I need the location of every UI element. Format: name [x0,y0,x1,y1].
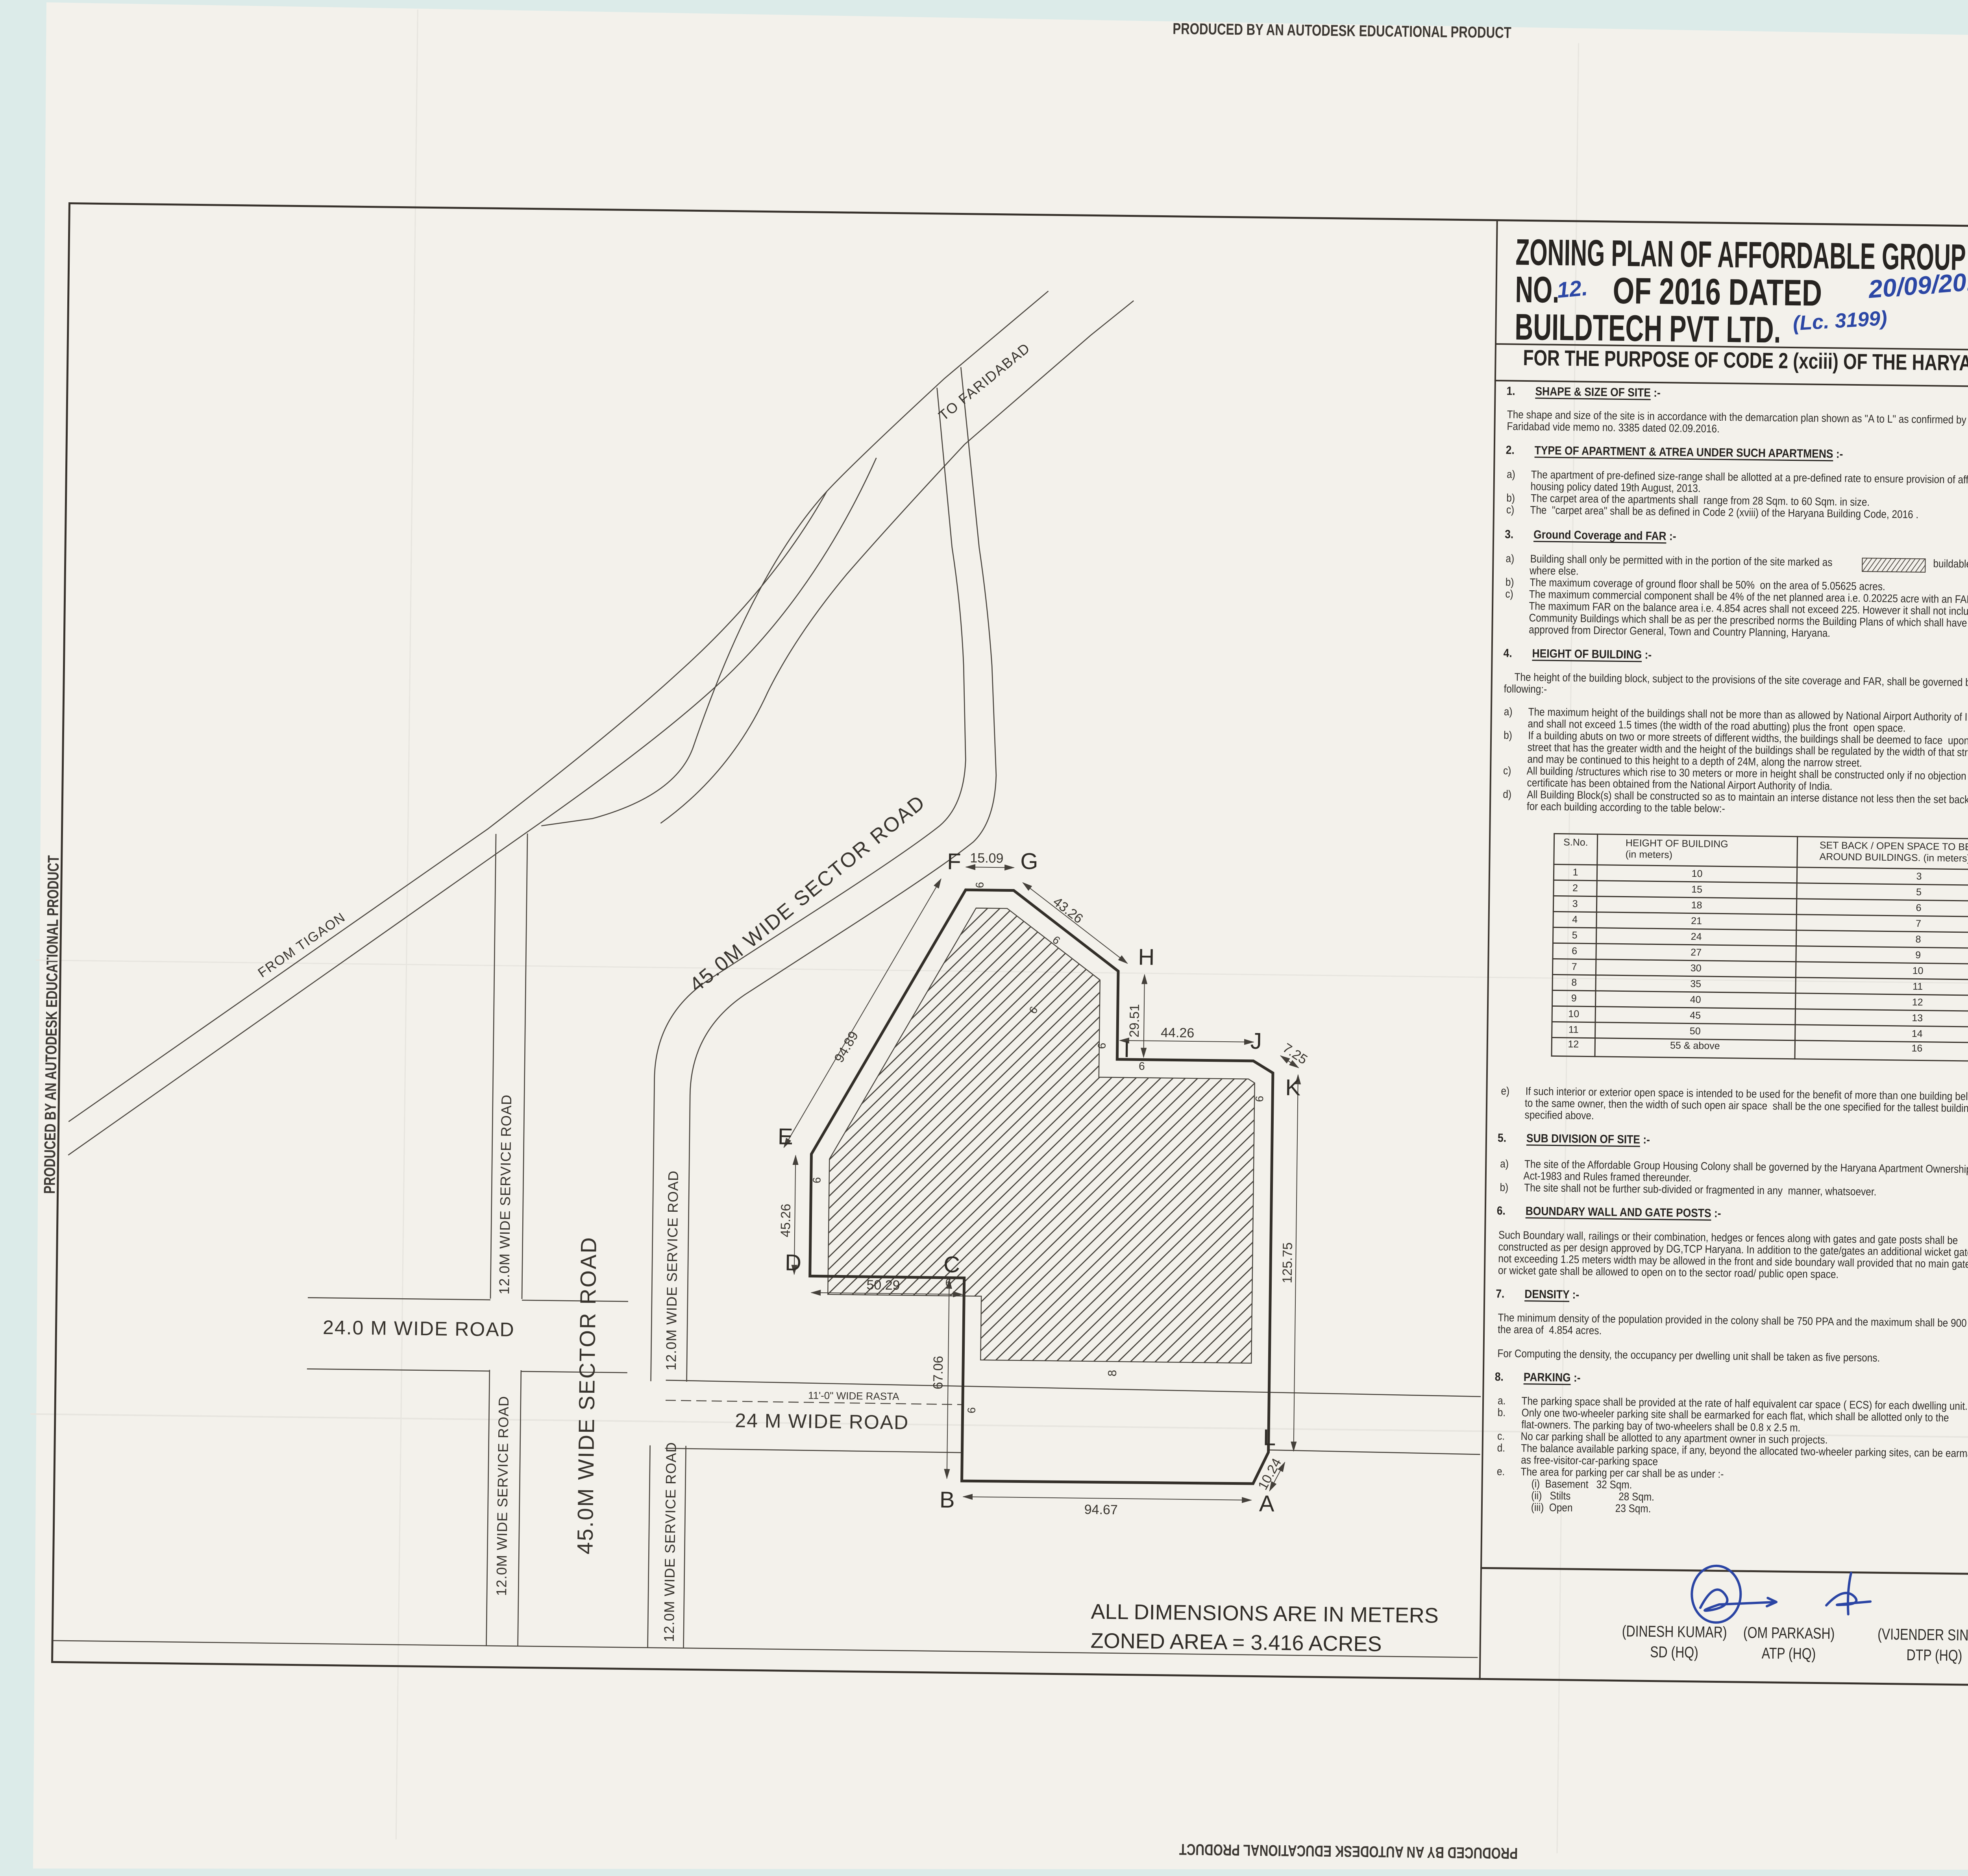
svg-text:45.0M WIDE SECTOR ROAD: 45.0M WIDE SECTOR ROAD [685,791,930,997]
svg-text:FROM TIGAON: FROM TIGAON [255,909,348,980]
svg-text:12.0M WIDE SERVICE ROAD: 12.0M WIDE SERVICE ROAD [663,1170,681,1371]
svg-text:45.26: 45.26 [778,1203,793,1237]
svg-text:24.0 M WIDE ROAD: 24.0 M WIDE ROAD [323,1316,515,1341]
svg-text:E: E [778,1124,793,1150]
svg-text:ALL DIMENSIONS ARE IN METERS: ALL DIMENSIONS ARE IN METERS [1091,1600,1439,1627]
svg-text:D: D [785,1250,802,1275]
svg-text:6: 6 [1253,1096,1265,1102]
svg-text:H: H [1138,944,1155,970]
svg-text:B: B [940,1487,955,1512]
svg-text:I: I [1123,1037,1130,1062]
svg-text:45.0M WIDE SECTOR ROAD: 45.0M WIDE SECTOR ROAD [572,1236,601,1554]
svg-text:TO FARIDABAD: TO FARIDABAD [936,340,1033,424]
svg-text:94.89: 94.89 [831,1029,861,1065]
svg-text:10.24: 10.24 [1255,1456,1284,1492]
svg-text:125.75: 125.75 [1280,1242,1295,1283]
svg-text:6: 6 [945,1277,951,1289]
svg-text:G: G [1020,848,1038,874]
svg-text:15.09: 15.09 [970,850,1004,866]
svg-text:7.25: 7.25 [1280,1041,1310,1067]
svg-text:6: 6 [973,882,986,888]
svg-text:6: 6 [966,1407,978,1414]
svg-text:50.29: 50.29 [866,1277,900,1293]
svg-text:F: F [947,849,961,874]
svg-text:8: 8 [1106,1370,1119,1377]
svg-text:12.0M WIDE SERVICE ROAD: 12.0M WIDE SERVICE ROAD [493,1396,512,1596]
svg-text:12.0M WIDE SERVICE ROAD: 12.0M WIDE SERVICE ROAD [661,1442,679,1642]
svg-text:12.0M WIDE SERVICE ROAD: 12.0M WIDE SERVICE ROAD [496,1094,514,1295]
svg-text:94.67: 94.67 [1084,1502,1118,1517]
svg-text:A: A [1259,1491,1275,1516]
svg-text:6: 6 [1096,1043,1108,1049]
svg-text:67.06: 67.06 [930,1356,946,1390]
svg-text:L: L [1263,1425,1276,1450]
svg-text:C: C [943,1252,960,1277]
svg-text:6: 6 [1139,1060,1145,1072]
svg-text:11'-0" WIDE RASTA: 11'-0" WIDE RASTA [808,1390,899,1403]
svg-text:24 M WIDE ROAD: 24 M WIDE ROAD [735,1409,909,1433]
svg-text:K: K [1285,1075,1301,1100]
svg-text:6: 6 [811,1177,823,1183]
svg-text:ZONED AREA = 3.416 ACRES: ZONED AREA = 3.416 ACRES [1090,1629,1382,1656]
svg-text:J: J [1250,1028,1262,1054]
svg-text:29.51: 29.51 [1127,1004,1142,1038]
svg-text:44.26: 44.26 [1161,1025,1195,1041]
